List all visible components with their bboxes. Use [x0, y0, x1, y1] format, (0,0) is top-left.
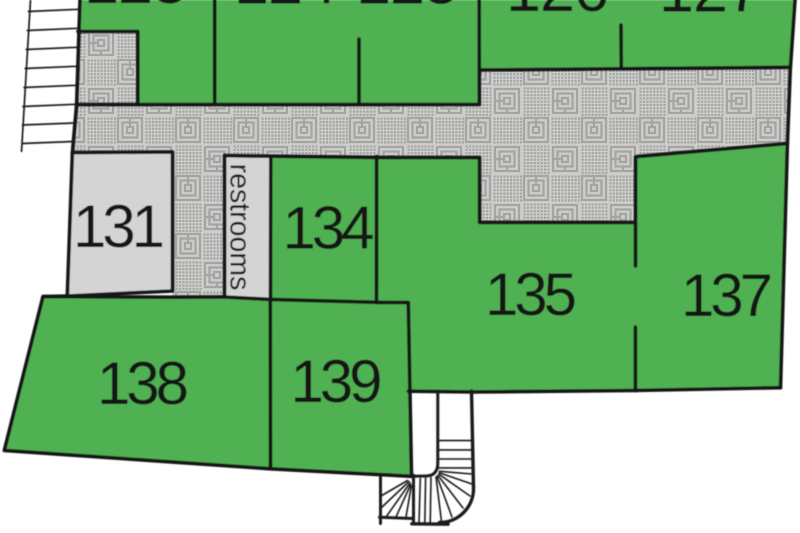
svg-text:127: 127	[659, 0, 761, 26]
svg-text:126: 126	[506, 0, 608, 25]
svg-text:134: 134	[282, 195, 373, 262]
svg-text:135: 135	[485, 261, 575, 328]
svg-text:125: 125	[356, 0, 458, 18]
svg-text:139: 139	[290, 348, 380, 415]
svg-text:137: 137	[681, 262, 771, 329]
svg-text:124: 124	[234, 0, 336, 18]
svg-text:restrooms: restrooms	[224, 164, 256, 291]
svg-text:131: 131	[73, 193, 163, 260]
svg-text:123: 123	[84, 0, 186, 17]
svg-text:138: 138	[97, 350, 187, 417]
